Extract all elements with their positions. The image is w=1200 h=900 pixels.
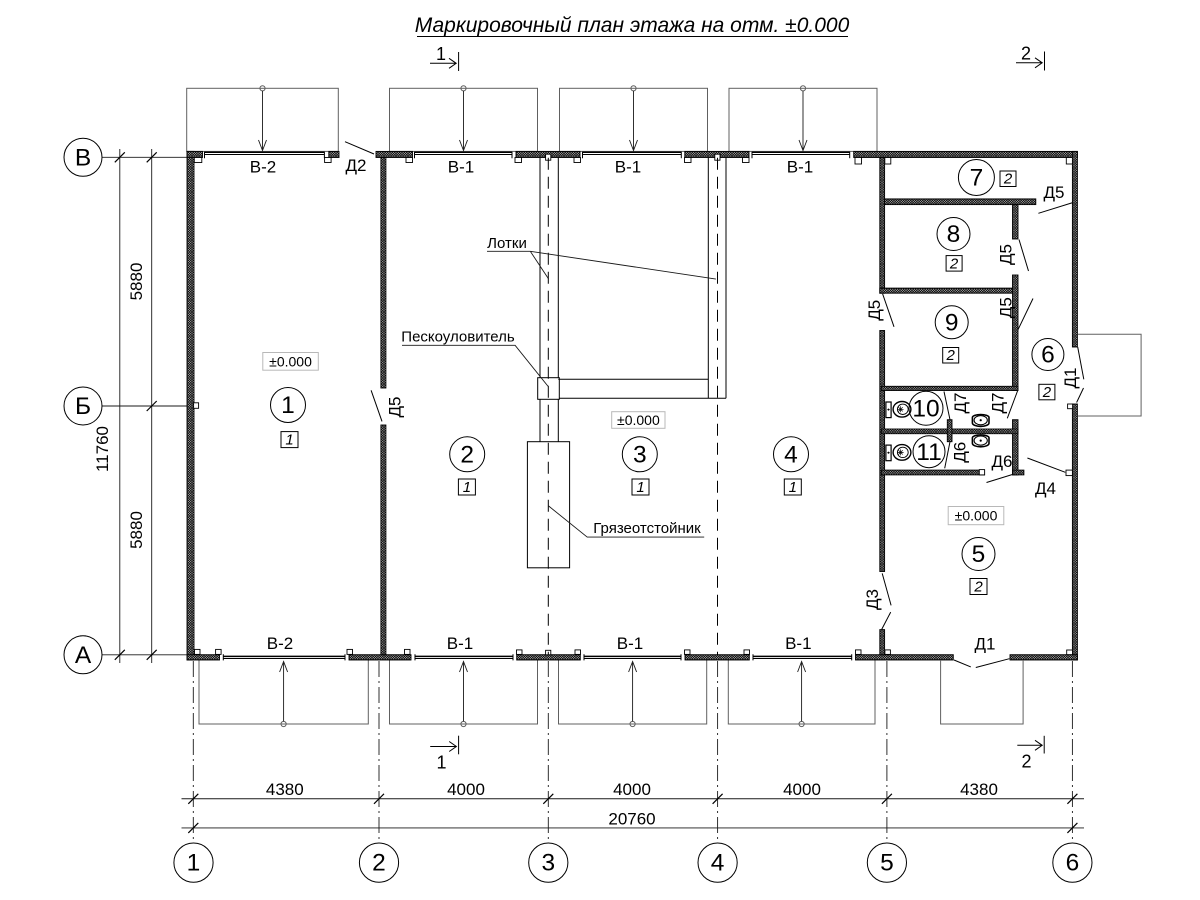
svg-text:2: 2 — [460, 442, 474, 469]
svg-text:5: 5 — [880, 850, 894, 877]
svg-text:В-1: В-1 — [447, 634, 473, 653]
svg-text:В-1: В-1 — [787, 158, 813, 177]
svg-text:2: 2 — [1021, 44, 1031, 64]
svg-text:Маркировочный план этажа на от: Маркировочный план этажа на отм. ±0.000 — [415, 14, 850, 37]
svg-text:±0.000: ±0.000 — [269, 353, 312, 369]
svg-text:2: 2 — [1003, 171, 1013, 188]
svg-text:Д1: Д1 — [975, 634, 996, 653]
svg-text:В-1: В-1 — [615, 158, 641, 177]
svg-text:5: 5 — [972, 541, 986, 568]
svg-text:1: 1 — [187, 850, 201, 877]
svg-text:Лотки: Лотки — [487, 235, 527, 252]
svg-text:Д6: Д6 — [992, 452, 1013, 471]
svg-text:Пескоуловитель: Пескоуловитель — [401, 328, 515, 345]
svg-text:7: 7 — [970, 165, 984, 192]
svg-text:Д7: Д7 — [989, 393, 1008, 414]
svg-text:Грязеотстойник: Грязеотстойник — [593, 520, 701, 537]
svg-text:В-1: В-1 — [448, 158, 474, 177]
svg-text:4: 4 — [784, 442, 798, 469]
svg-text:2: 2 — [372, 850, 386, 877]
svg-text:Д2: Д2 — [346, 156, 367, 175]
svg-text:4000: 4000 — [447, 780, 485, 799]
svg-text:20760: 20760 — [608, 809, 655, 828]
svg-text:1: 1 — [281, 392, 295, 419]
svg-text:8: 8 — [947, 221, 961, 248]
svg-text:5880: 5880 — [127, 263, 146, 301]
svg-text:В-2: В-2 — [250, 158, 276, 177]
svg-text:4: 4 — [711, 850, 725, 877]
svg-text:Д5: Д5 — [386, 397, 405, 418]
svg-text:10: 10 — [912, 396, 939, 423]
svg-text:1: 1 — [436, 44, 446, 64]
svg-text:2: 2 — [949, 255, 959, 272]
svg-text:4380: 4380 — [960, 780, 998, 799]
svg-text:9: 9 — [945, 310, 959, 337]
svg-text:2: 2 — [973, 579, 983, 596]
svg-text:3: 3 — [633, 442, 647, 469]
svg-text:2: 2 — [1021, 752, 1031, 772]
svg-text:6: 6 — [1066, 850, 1080, 877]
svg-text:2: 2 — [1042, 384, 1052, 401]
svg-text:6: 6 — [1041, 342, 1055, 369]
svg-text:В-1: В-1 — [617, 634, 643, 653]
svg-text:2: 2 — [946, 347, 956, 364]
svg-text:5880: 5880 — [127, 511, 146, 549]
svg-text:Д5: Д5 — [996, 297, 1015, 318]
svg-text:1: 1 — [285, 432, 293, 449]
svg-text:А: А — [75, 642, 92, 669]
svg-text:4000: 4000 — [783, 780, 821, 799]
svg-text:1: 1 — [636, 479, 644, 496]
svg-text:3: 3 — [541, 850, 555, 877]
svg-text:Д7: Д7 — [951, 393, 970, 414]
svg-text:1: 1 — [463, 479, 471, 496]
svg-text:В-2: В-2 — [267, 634, 293, 653]
svg-text:±0.000: ±0.000 — [617, 412, 660, 428]
svg-text:1: 1 — [789, 479, 797, 496]
svg-text:Д5: Д5 — [1044, 183, 1065, 202]
svg-text:±0.000: ±0.000 — [955, 508, 998, 524]
svg-text:Б: Б — [75, 393, 91, 420]
svg-text:В-1: В-1 — [785, 634, 811, 653]
svg-text:11760: 11760 — [93, 426, 112, 472]
svg-text:1: 1 — [436, 753, 446, 773]
svg-text:4000: 4000 — [613, 780, 651, 799]
svg-text:Д4: Д4 — [1035, 479, 1056, 498]
svg-text:Д5: Д5 — [996, 244, 1015, 265]
svg-text:Д6: Д6 — [951, 442, 970, 463]
svg-text:Д1: Д1 — [1061, 368, 1080, 389]
svg-text:11: 11 — [916, 439, 941, 466]
svg-text:В: В — [75, 144, 91, 171]
svg-text:4380: 4380 — [266, 780, 304, 799]
svg-text:Д5: Д5 — [865, 300, 884, 321]
svg-text:Д3: Д3 — [863, 589, 882, 610]
